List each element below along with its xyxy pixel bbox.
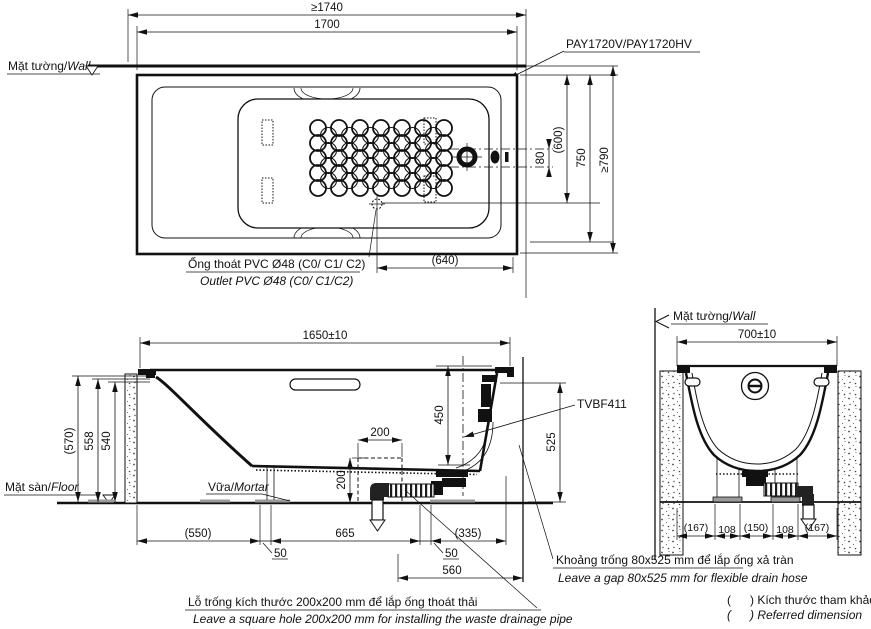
dim-overflow-offset: 80 — [535, 139, 549, 177]
grip-handle-left — [685, 378, 700, 386]
overflow-rim-mark — [505, 152, 509, 162]
svg-text:558: 558 — [84, 431, 96, 450]
wall-arrow — [656, 315, 669, 328]
left-wall-section — [125, 374, 137, 503]
svg-text:(167): (167) — [805, 522, 830, 534]
svg-text:450: 450 — [434, 405, 446, 424]
waste-pipe-arrow — [370, 520, 385, 531]
svg-text:≥1740: ≥1740 — [311, 2, 343, 14]
end-view: Mặt tường/Wall 700±10 — [655, 308, 861, 560]
svg-text:(550): (550) — [185, 528, 212, 540]
svg-text:108: 108 — [776, 524, 794, 536]
svg-text:665: 665 — [335, 528, 354, 540]
dim-tub-width: 1700 — [137, 19, 517, 70]
right-wall-column — [838, 371, 861, 555]
legend-paren-en: ( — [727, 608, 733, 622]
legend-vi: ) Kích thước tham khảo — [750, 593, 871, 607]
hole-note-vi: Lỗ trống kích thước 200x200 mm để lắp ốn… — [188, 594, 477, 609]
dim-540: 540 — [101, 382, 115, 502]
gap-note-vi: Khoảng trống 80x525 mm để lắp ống xả trà… — [556, 552, 794, 567]
side-view: Mặt sàn/Floor 1650±10 450 — [4, 330, 627, 582]
valve-label: TVBF411 — [577, 397, 627, 411]
drain-elbow — [370, 483, 389, 500]
dim-600: (600) — [553, 75, 567, 203]
svg-text:PAY1720V/PAY1720HV: PAY1720V/PAY1720HV — [566, 37, 692, 51]
svg-text:1650±10: 1650±10 — [303, 330, 348, 342]
drain-trap — [431, 470, 468, 495]
gap-note-en: Leave a gap 80x525 mm for flexible drain… — [558, 571, 808, 585]
outlet-label-en: Outlet PVC Ø48 (C0/ C1/C2) — [200, 274, 353, 288]
left-wall-column — [660, 371, 683, 555]
dim-750: 750 — [576, 75, 590, 242]
notes: Khoảng trống 80x525 mm để lắp ống xả trà… — [185, 445, 871, 626]
floor-label: Mặt sàn/Floor — [5, 480, 79, 494]
overflow-fitting-end — [742, 373, 769, 400]
hole-note-en: Leave a square hole 200x200 mm for insta… — [193, 612, 573, 626]
svg-text:(167): (167) — [684, 522, 709, 534]
bathing-well — [238, 99, 489, 228]
mortar-label: Vữa/Mortar — [208, 480, 270, 494]
dim-total-depth: ≥790 — [599, 66, 613, 253]
svg-text:(640): (640) — [432, 255, 459, 267]
dim-hole-height: 200 — [336, 458, 366, 503]
svg-text:750: 750 — [576, 148, 588, 167]
overflow-mark — [491, 151, 500, 164]
svg-text:(570): (570) — [64, 427, 76, 454]
dim-558: 558 — [84, 379, 98, 502]
legend-en: ) Referred dimension — [748, 608, 862, 622]
svg-text:1700: 1700 — [314, 19, 340, 31]
tub-front-slope — [156, 377, 252, 466]
grip-handle-right — [814, 378, 829, 386]
waste-pipe — [372, 500, 383, 520]
svg-text:560: 560 — [442, 565, 461, 577]
dim-length: 1650±10 — [140, 330, 510, 368]
svg-text:≥790: ≥790 — [599, 147, 611, 173]
product-label: PAY1720V/PAY1720HV — [508, 37, 700, 79]
top-view: Mặt tường/Wall ≥1740 1700 PAY1720V/PAY17… — [7, 2, 700, 298]
bathtub-installation-drawing: Mặt tường/Wall ≥1740 1700 PAY1720V/PAY17… — [0, 0, 871, 629]
svg-text:200: 200 — [370, 427, 389, 439]
svg-text:(600): (600) — [553, 126, 565, 153]
wall-label: Mặt tường/Wall — [8, 59, 91, 73]
drawing-canvas: Mặt tường/Wall ≥1740 1700 PAY1720V/PAY17… — [0, 0, 871, 629]
legend-paren-vi: ( — [727, 593, 731, 607]
svg-text:80: 80 — [535, 152, 547, 165]
dim-525: 525 — [500, 383, 566, 502]
svg-text:540: 540 — [101, 431, 113, 450]
outlet-label-vi: Ống thoát PVC Ø48 (C0/ C1/ C2) — [188, 256, 365, 271]
svg-text:(150): (150) — [744, 522, 769, 534]
svg-text:108: 108 — [718, 524, 736, 536]
dim-560: 560 — [398, 554, 523, 582]
svg-text:700±10: 700±10 — [738, 329, 776, 341]
dim-end-width: 700±10 — [677, 329, 837, 366]
overflow-valve — [456, 375, 497, 472]
dim-hole-width: 200 — [358, 427, 402, 457]
svg-text:200: 200 — [336, 470, 348, 489]
grip-handle-side — [290, 379, 360, 390]
dim-50-left: 50 — [274, 548, 287, 560]
svg-text:525: 525 — [546, 432, 558, 451]
end-wall-label: Mặt tường/Wall — [673, 309, 756, 323]
dim-bottom-chain: (550) 665 (335) 50 50 — [137, 476, 506, 560]
dim-50-right: 50 — [445, 548, 458, 560]
